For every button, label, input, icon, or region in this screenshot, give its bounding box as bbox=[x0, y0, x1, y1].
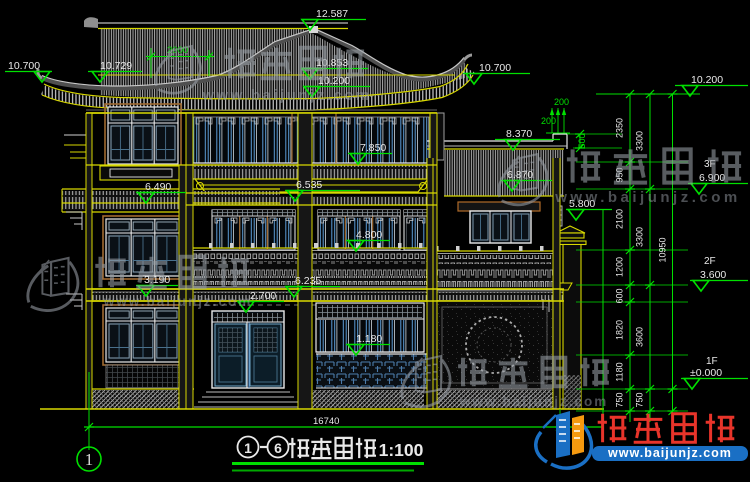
svg-text:2.700: 2.700 bbox=[250, 290, 276, 302]
svg-text:2100: 2100 bbox=[615, 209, 625, 229]
svg-text:www.baijunjz.com: www.baijunjz.com bbox=[103, 294, 253, 309]
svg-text:10.729: 10.729 bbox=[100, 60, 132, 72]
svg-text:3300: 3300 bbox=[635, 131, 645, 151]
svg-text:www.baijunjz.com: www.baijunjz.com bbox=[459, 394, 609, 409]
svg-text:3600: 3600 bbox=[635, 327, 645, 347]
svg-text:1:100: 1:100 bbox=[379, 440, 424, 460]
svg-text:8.370: 8.370 bbox=[506, 128, 532, 140]
svg-text:1.180: 1.180 bbox=[356, 333, 382, 345]
svg-text:3.600: 3.600 bbox=[700, 269, 726, 281]
svg-text:750: 750 bbox=[635, 392, 645, 407]
svg-text:1: 1 bbox=[244, 440, 252, 456]
svg-text:200: 200 bbox=[554, 97, 569, 107]
svg-text:6.490: 6.490 bbox=[145, 181, 171, 193]
svg-text:6: 6 bbox=[274, 440, 282, 456]
svg-text:www.baijunjz.com: www.baijunjz.com bbox=[554, 189, 740, 206]
svg-text:±0.000: ±0.000 bbox=[690, 367, 722, 379]
svg-text:6.235: 6.235 bbox=[295, 275, 321, 287]
svg-text:12.587: 12.587 bbox=[316, 8, 348, 20]
svg-text:1200: 1200 bbox=[615, 257, 625, 277]
svg-text:10950: 10950 bbox=[658, 237, 668, 262]
svg-text:www.baijunjz.com: www.baijunjz.com bbox=[201, 87, 371, 104]
svg-text:7.850: 7.850 bbox=[360, 142, 386, 154]
svg-text:10.200: 10.200 bbox=[691, 74, 723, 86]
svg-text:10.700: 10.700 bbox=[479, 62, 511, 74]
svg-text:2350: 2350 bbox=[615, 118, 625, 138]
svg-text:3.190: 3.190 bbox=[144, 274, 170, 286]
svg-text:www.baijunjz.com: www.baijunjz.com bbox=[607, 446, 732, 460]
svg-text:750: 750 bbox=[615, 392, 625, 407]
svg-text:1180: 1180 bbox=[615, 362, 625, 381]
svg-text:10.700: 10.700 bbox=[8, 60, 40, 72]
svg-text:1F: 1F bbox=[706, 356, 718, 367]
svg-text:4.800: 4.800 bbox=[356, 229, 382, 241]
svg-text:3300: 3300 bbox=[635, 227, 645, 247]
svg-text:600: 600 bbox=[615, 288, 625, 303]
svg-text:16740: 16740 bbox=[313, 416, 339, 427]
svg-text:2F: 2F bbox=[704, 256, 716, 267]
svg-text:200: 200 bbox=[541, 116, 556, 126]
svg-text:1: 1 bbox=[85, 450, 94, 469]
svg-text:6.535: 6.535 bbox=[296, 179, 322, 191]
svg-text:1820: 1820 bbox=[615, 320, 625, 340]
